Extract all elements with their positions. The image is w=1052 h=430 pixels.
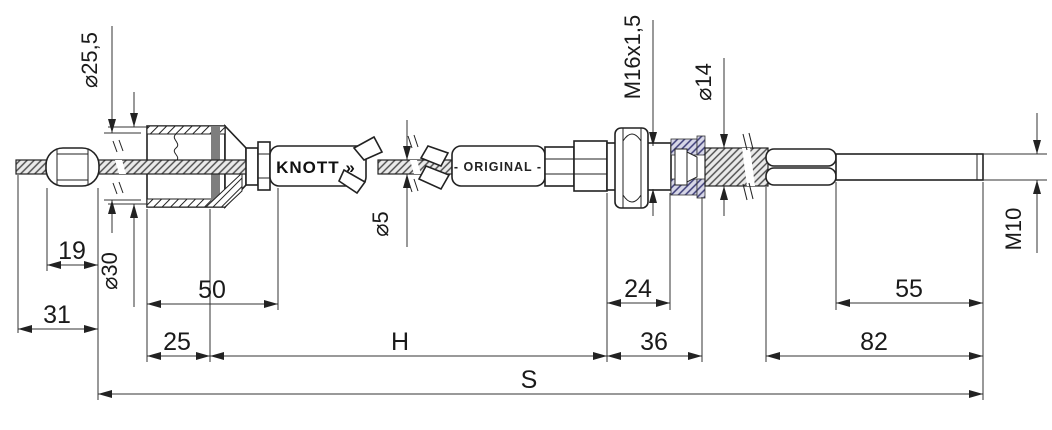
- technical-drawing-page: KNOTT » - ORIGINAL -: [0, 0, 1052, 430]
- dim-phi-30: ⌀30: [97, 252, 122, 290]
- cable-eye-nipple: [46, 148, 99, 186]
- dim-phi-14: ⌀14: [691, 63, 716, 101]
- socket-cone: [687, 152, 697, 182]
- socket-ferrule: [675, 149, 687, 185]
- linear-dimension-labels: 19 31 50 25 H 24 36 55 82 S: [43, 237, 923, 394]
- dim-m10: M10: [1001, 208, 1026, 251]
- dim-50: 50: [198, 276, 226, 304]
- dim-S: S: [521, 366, 538, 394]
- dim-phi-5: ⌀5: [368, 211, 393, 236]
- dim-36: 36: [640, 328, 668, 356]
- sleeve-collar: [258, 142, 270, 190]
- bell-neck: [246, 142, 270, 190]
- dim-H: H: [391, 328, 409, 356]
- threaded-rod: [836, 154, 983, 180]
- fork-end-fitting: [766, 149, 836, 185]
- hex-nut: [615, 128, 648, 208]
- dim-31: 31: [43, 301, 71, 329]
- dim-19: 19: [58, 237, 86, 265]
- outer-conduit: [705, 148, 768, 186]
- dim-24: 24: [624, 275, 652, 303]
- adapter-body: [545, 141, 671, 191]
- dim-82: 82: [860, 328, 888, 356]
- dim-phi-25-5: ⌀25,5: [77, 32, 102, 88]
- dim-55: 55: [895, 275, 923, 303]
- abutment-socket: [671, 136, 705, 198]
- original-sleeve: - ORIGINAL -: [452, 146, 545, 186]
- dim-m16: M16x1,5: [620, 15, 645, 99]
- knott-sleeve: KNOTT »: [270, 137, 382, 193]
- brake-cable-drawing: KNOTT » - ORIGINAL -: [0, 0, 1052, 430]
- original-label: - ORIGINAL -: [454, 160, 542, 174]
- dim-25: 25: [163, 328, 191, 356]
